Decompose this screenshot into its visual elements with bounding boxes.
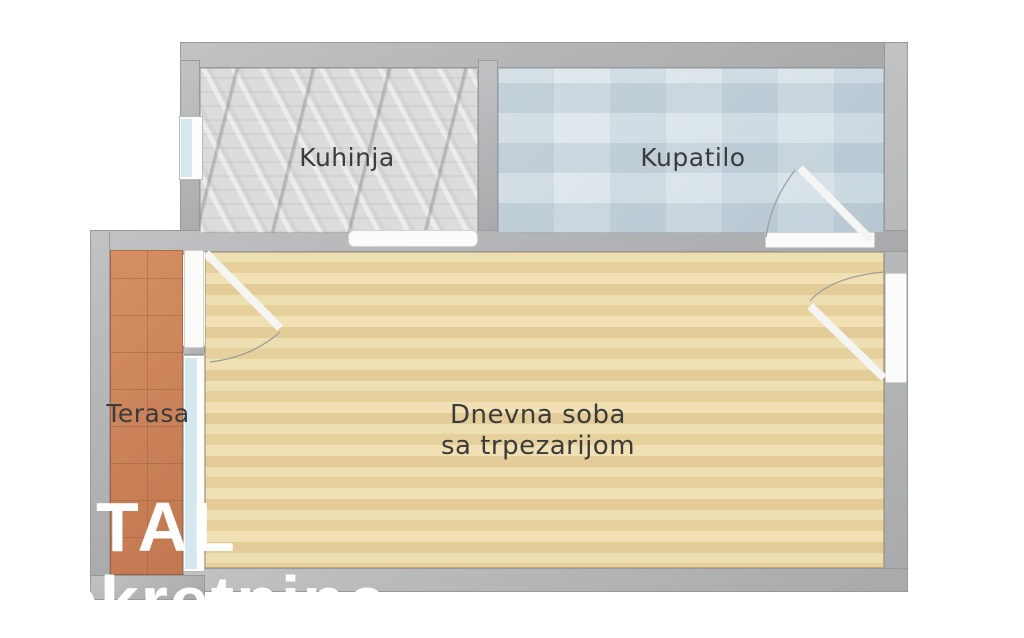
room-bathroom-label: Kupatilo — [593, 142, 793, 173]
room-living-label: Dnevna soba sa trpezarijom — [388, 400, 688, 462]
room-living-label-line1: Dnevna soba — [388, 400, 688, 431]
watermark-line1: TOTAL — [0, 492, 239, 562]
room-living-label-line2: sa trpezarijom — [388, 431, 688, 462]
watermark-line2: nekretnine — [14, 566, 388, 636]
kitchen-window — [179, 116, 203, 180]
kitchen-living-passage-opening — [348, 230, 478, 247]
wall-kitchen-bathroom-divider — [478, 60, 498, 235]
kitchen-window-pane — [181, 119, 192, 177]
bathroom-door-opening — [765, 232, 875, 248]
wall-top — [180, 42, 908, 68]
terrace-door-opening — [184, 250, 204, 348]
room-kitchen-label: Kuhinja — [247, 142, 447, 173]
room-terrace-label: Terasa — [98, 398, 198, 429]
entrance-door-opening — [885, 273, 907, 383]
floor-plan: Kuhinja Kupatilo Dnevna soba sa trpezari… — [0, 0, 1024, 638]
